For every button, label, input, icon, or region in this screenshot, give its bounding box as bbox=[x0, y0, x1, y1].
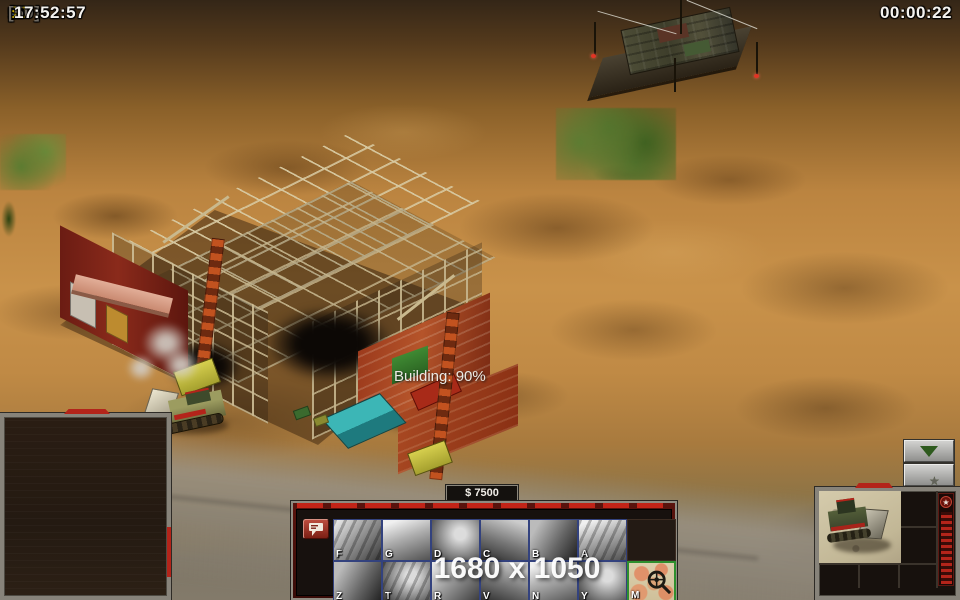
build-button-a[interactable]: A bbox=[578, 519, 627, 561]
build-button-g[interactable]: G bbox=[382, 519, 431, 561]
command-bar: F G D C B A Z T R V N Y bbox=[291, 501, 677, 600]
mine-detector-icon bbox=[645, 568, 673, 596]
sell-sign-icon bbox=[308, 522, 324, 536]
build-button-d[interactable]: D bbox=[431, 519, 480, 561]
build-button-n[interactable]: N bbox=[529, 561, 578, 600]
money-display: $ 7500 bbox=[446, 485, 518, 501]
supply-stash[interactable] bbox=[588, 2, 768, 90]
command-bar-accent bbox=[297, 503, 671, 508]
tree-dark-left bbox=[0, 194, 22, 244]
panel-grid-line bbox=[819, 563, 936, 565]
dust-puff bbox=[126, 354, 156, 382]
command-bar-inner: F G D C B A Z T R V N Y bbox=[296, 509, 672, 596]
build-button-m-mine-clear[interactable]: M bbox=[627, 561, 676, 600]
stash-post bbox=[756, 42, 758, 76]
minimap-red-accent bbox=[64, 409, 110, 414]
build-slot-empty bbox=[627, 519, 676, 561]
build-button-r[interactable]: R bbox=[431, 561, 480, 600]
build-button-c[interactable]: C bbox=[480, 519, 529, 561]
mission-timer: 00:00:22 bbox=[880, 3, 952, 23]
game-screen: UR 10 50[50] 17:52:57 00:00:22 Building:… bbox=[0, 0, 960, 600]
build-button-t[interactable]: T bbox=[382, 561, 431, 600]
down-arrow-icon bbox=[920, 446, 938, 457]
stash-post bbox=[594, 22, 596, 56]
unit-info-panel: ★ bbox=[815, 487, 960, 600]
stash-lamp bbox=[754, 74, 759, 78]
build-button-v[interactable]: V bbox=[480, 561, 529, 600]
dust-puff bbox=[162, 348, 200, 382]
stash-post bbox=[680, 0, 682, 34]
unit-portrait-dozer[interactable] bbox=[819, 491, 901, 563]
unit-panel-red-accent bbox=[855, 483, 893, 488]
build-button-f[interactable]: F bbox=[333, 519, 382, 561]
build-button-y[interactable]: Y bbox=[578, 561, 627, 600]
build-button-b[interactable]: B bbox=[529, 519, 578, 561]
panel-collapse-button[interactable] bbox=[904, 440, 954, 462]
star-emblem-icon: ★ bbox=[940, 496, 952, 508]
clock: 17:52:57 bbox=[14, 3, 86, 23]
building-progress-label: Building: 90% bbox=[394, 368, 486, 385]
veterancy-strip: ★ bbox=[938, 493, 954, 586]
minimap-red-accent bbox=[167, 527, 171, 577]
veterancy-bars bbox=[941, 512, 952, 584]
portrait-cab bbox=[836, 498, 856, 514]
stash-lamp bbox=[591, 54, 596, 58]
tree-cluster-mid bbox=[556, 108, 676, 180]
tree-cluster-left bbox=[0, 134, 66, 190]
radar-minimap[interactable] bbox=[0, 413, 171, 600]
promotion-button[interactable]: ★★★ bbox=[904, 464, 954, 486]
sell-button[interactable] bbox=[303, 519, 329, 539]
stash-post bbox=[674, 58, 676, 92]
build-button-z[interactable]: Z bbox=[333, 561, 382, 600]
